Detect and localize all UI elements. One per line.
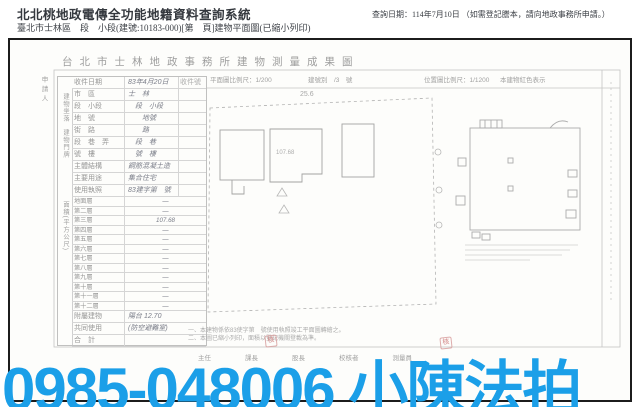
screenshot-page: 北北桃地政電傳全功能地籍資料查詢系統 臺北市士林區 段 小段(建號:10183-… xyxy=(0,0,640,407)
document-subtitle: 臺北市士林區 段 小段(建號:10183-000)[第 頁]建物平面圖(已縮小列… xyxy=(17,21,310,34)
location-diagram xyxy=(456,120,580,240)
plan-dimension-text: 25.6 xyxy=(300,91,314,98)
site-boundary: 25.6 xyxy=(208,91,436,312)
diagram-note-lines xyxy=(465,245,578,260)
plan-area-text: 107.68 xyxy=(276,150,295,156)
watermark-text: 0985-048006 小陳法拍 xyxy=(2,341,580,407)
building-outlines xyxy=(220,124,374,194)
plan-marks xyxy=(277,149,442,228)
query-date: 查詢日期：114年7月10日 （如需登記謄本，請向地政事務所申請。） xyxy=(372,9,634,20)
footnote-line: 一、本建物係依83使字第 號使用執照竣工平面圖轉繪之。 xyxy=(188,328,548,336)
form-borders xyxy=(54,70,620,347)
